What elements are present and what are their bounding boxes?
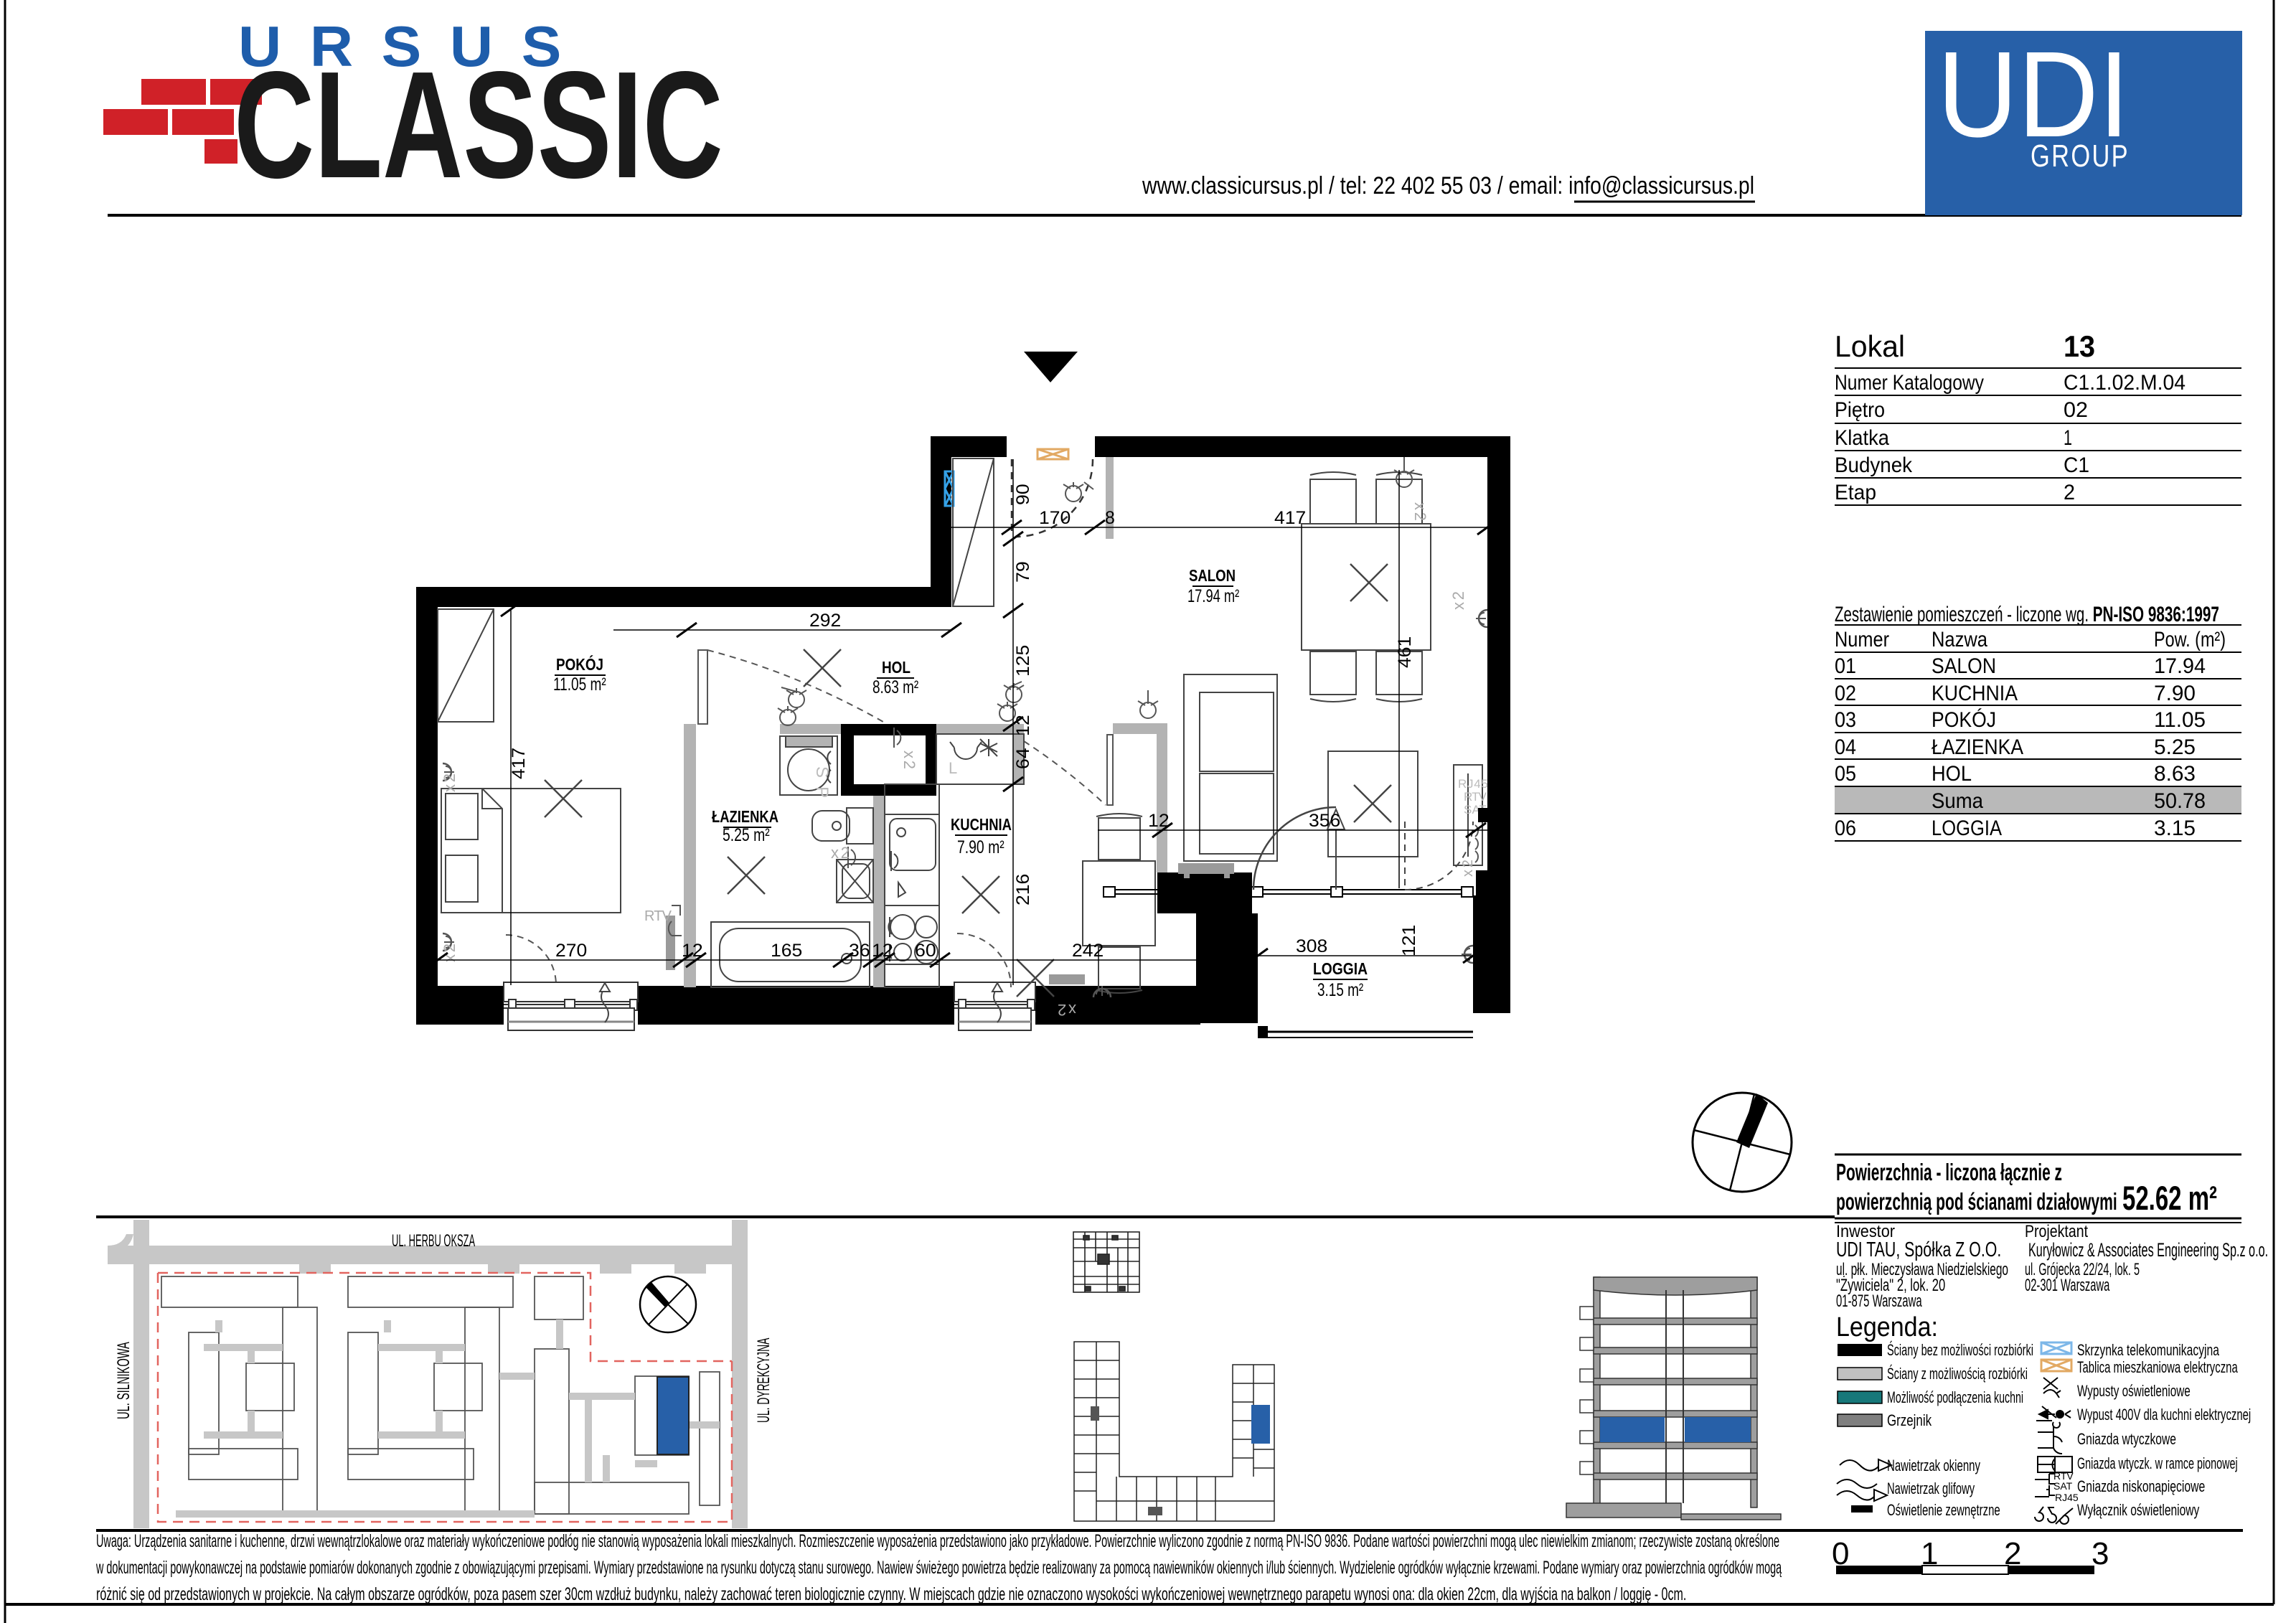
svg-text:ŁAZIENKA: ŁAZIENKA: [712, 807, 778, 826]
svg-text:Tablica mieszkaniowa elektrycz: Tablica mieszkaniowa elektryczna: [2077, 1358, 2238, 1376]
svg-text:x2: x2: [1460, 860, 1476, 877]
svg-text:Nawietrzak glifowy: Nawietrzak glifowy: [1887, 1479, 1975, 1497]
svg-text:01: 01: [1835, 654, 1856, 678]
svg-text:RJ45: RJ45: [2055, 1492, 2079, 1503]
svg-text:461: 461: [1396, 636, 1415, 668]
svg-text:C1.1.02.M.04: C1.1.02.M.04: [2064, 371, 2186, 395]
svg-text:Oświetlenie zewnętrzne: Oświetlenie zewnętrzne: [1887, 1501, 2000, 1519]
svg-text:P: P: [812, 786, 832, 798]
svg-text:Uwaga: Urządzenia sanitarne i: Uwaga: Urządzenia sanitarne i kuchenne, …: [96, 1531, 1779, 1551]
svg-text:12: 12: [872, 941, 893, 961]
svg-text:RJ45: RJ45: [1458, 777, 1488, 791]
svg-text:Wypusty oświetleniowe: Wypusty oświetleniowe: [2077, 1382, 2191, 1400]
svg-text:3.15 m²: 3.15 m²: [1317, 979, 1363, 1000]
svg-text:UL. DYREKCYJNA: UL. DYREKCYJNA: [754, 1338, 773, 1423]
svg-text:POKÓJ: POKÓJ: [556, 654, 603, 674]
svg-text:8: 8: [1105, 509, 1115, 528]
svg-text:SAT: SAT: [2053, 1480, 2073, 1492]
svg-text:216: 216: [1014, 874, 1033, 905]
svg-text:w dokumentacji powykonawczej n: w dokumentacji powykonawczej na podstawi…: [95, 1558, 1782, 1578]
svg-text:C1: C1: [2064, 453, 2089, 477]
svg-text:356: 356: [1309, 812, 1340, 831]
svg-text:01-875 Warszawa: 01-875 Warszawa: [1836, 1292, 1922, 1311]
svg-text:Wyłącznik oświetleniowy: Wyłącznik oświetleniowy: [2077, 1501, 2200, 1519]
svg-text:x2: x2: [1411, 502, 1429, 521]
svg-text:12: 12: [1014, 715, 1033, 736]
svg-text:8.63 m²: 8.63 m²: [872, 677, 918, 697]
svg-text:LOGGIA: LOGGIA: [1313, 959, 1368, 978]
svg-text:Nawietrzak okienny: Nawietrzak okienny: [1887, 1457, 1981, 1474]
svg-text:12: 12: [682, 941, 703, 961]
svg-text:Numer Katalogowy: Numer Katalogowy: [1835, 371, 1984, 395]
svg-text:Kuryłowicz & Associates Engine: Kuryłowicz & Associates Engineering Sp.z…: [2028, 1239, 2268, 1261]
svg-text:RTV: RTV: [644, 908, 672, 924]
svg-text:125: 125: [1014, 645, 1033, 677]
svg-text:Nazwa: Nazwa: [1932, 628, 1987, 651]
svg-text:Etap: Etap: [1835, 481, 1876, 504]
svg-text:Skrzynka telekomunikacyjna: Skrzynka telekomunikacyjna: [2077, 1341, 2220, 1359]
svg-text:Zestawienie pomieszczeń - licz: Zestawienie pomieszczeń - liczone wg. PN…: [1835, 603, 2219, 626]
svg-text:SALON: SALON: [1932, 654, 1996, 678]
svg-text:02-301 Warszawa: 02-301 Warszawa: [2025, 1276, 2110, 1295]
svg-text:170: 170: [1039, 509, 1071, 528]
svg-text:Możliwość podłączenia kuchni: Możliwość podłączenia kuchni: [1887, 1388, 2023, 1406]
svg-text:Piętro: Piętro: [1835, 398, 1885, 422]
svg-text:x2: x2: [441, 773, 458, 792]
svg-text:ŁAZIENKA: ŁAZIENKA: [1932, 735, 2023, 759]
svg-text:292: 292: [809, 611, 841, 631]
svg-text:02: 02: [1835, 682, 1856, 705]
svg-text:x2: x2: [1058, 1001, 1076, 1019]
svg-text:3.15: 3.15: [2154, 817, 2196, 840]
svg-text:17.94 m²: 17.94 m²: [1187, 585, 1239, 606]
svg-text:Suma: Suma: [1932, 789, 1983, 813]
svg-text:60: 60: [915, 941, 936, 961]
svg-text:Pow. (m²): Pow. (m²): [2154, 628, 2226, 651]
svg-text:417: 417: [1274, 509, 1306, 528]
svg-text:różnić się od przedstawionych: różnić się od przedstawionych w projekci…: [96, 1585, 1686, 1604]
svg-text:2: 2: [2064, 481, 2075, 504]
svg-text:Numer: Numer: [1835, 628, 1889, 651]
svg-text:36: 36: [849, 941, 870, 961]
svg-text:17.94: 17.94: [2154, 654, 2206, 678]
svg-text:www.classicursus.pl / tel: 22: www.classicursus.pl / tel: 22 402 55 03 …: [1142, 172, 1754, 199]
svg-text:UL. HERBU OKSZA: UL. HERBU OKSZA: [392, 1232, 475, 1251]
svg-text:x2: x2: [441, 944, 458, 962]
svg-text:Gniazda niskonapięciowe: Gniazda niskonapięciowe: [2077, 1477, 2205, 1495]
svg-text:CLASSIC: CLASSIC: [234, 40, 723, 210]
svg-text:417: 417: [509, 748, 529, 779]
svg-text:L: L: [949, 759, 957, 777]
svg-text:x2: x2: [900, 751, 918, 769]
svg-text:Grzejnik: Grzejnik: [1887, 1411, 1932, 1429]
svg-text:90: 90: [1014, 484, 1033, 505]
svg-text:7.90 m²: 7.90 m²: [957, 837, 1004, 857]
svg-text:Lokal: Lokal: [1835, 329, 1905, 363]
svg-text:13: 13: [2064, 329, 2095, 363]
svg-text:Gniazda wtyczkowe: Gniazda wtyczkowe: [2077, 1430, 2176, 1448]
svg-text:02: 02: [2064, 398, 2088, 422]
svg-text:42: 42: [1490, 874, 1510, 895]
svg-text:06: 06: [1835, 817, 1856, 840]
svg-text:03: 03: [1835, 708, 1856, 732]
svg-text:79: 79: [1014, 561, 1033, 583]
svg-text:Ściany z możliwością rozbiórki: Ściany z możliwością rozbiórki: [1887, 1365, 2028, 1383]
svg-text:8.63: 8.63: [2154, 762, 2196, 786]
svg-text:05: 05: [1835, 762, 1856, 786]
svg-text:11.05 m²: 11.05 m²: [553, 674, 606, 695]
svg-text:powierzchnią pod ścianami dzia: powierzchnią pod ścianami działowymi: [1836, 1188, 2117, 1215]
svg-text:165: 165: [771, 941, 802, 961]
svg-text:LOGGIA: LOGGIA: [1932, 817, 2002, 840]
svg-text:RTV: RTV: [1464, 790, 1487, 804]
svg-text:04: 04: [1835, 735, 1856, 759]
svg-text:52.62 m²: 52.62 m²: [2122, 1179, 2217, 1217]
svg-text:Klatka: Klatka: [1835, 426, 1889, 450]
svg-text:12: 12: [1148, 812, 1170, 831]
svg-text:7.90: 7.90: [2154, 682, 2196, 705]
svg-text:KUCHNIA: KUCHNIA: [951, 815, 1012, 834]
svg-text:1: 1: [2064, 426, 2072, 450]
svg-text:5.25 m²: 5.25 m²: [723, 824, 770, 845]
svg-text:270: 270: [555, 941, 587, 961]
svg-text:Legenda:: Legenda:: [1836, 1312, 1938, 1342]
svg-text:Powierzchnia - liczona łącznie: Powierzchnia - liczona łącznie z: [1836, 1159, 2062, 1185]
svg-text:SALON: SALON: [1189, 566, 1236, 585]
svg-text:POKÓJ: POKÓJ: [1932, 708, 1996, 732]
svg-text:242: 242: [1072, 941, 1104, 961]
svg-text:S: S: [812, 766, 832, 778]
svg-text:11.05: 11.05: [2154, 708, 2206, 732]
svg-text:121: 121: [1400, 925, 1419, 956]
svg-text:HOL: HOL: [882, 658, 911, 677]
svg-text:64: 64: [1014, 748, 1033, 769]
svg-text:Gniazda wtyczk. w ramce pionow: Gniazda wtyczk. w ramce pionowej: [2077, 1454, 2238, 1472]
svg-text:UL. SILNIKOWA: UL. SILNIKOWA: [114, 1342, 133, 1419]
svg-text:Budynek: Budynek: [1835, 453, 1913, 477]
svg-text:GROUP: GROUP: [2031, 138, 2130, 174]
svg-text:5.25: 5.25: [2154, 735, 2196, 759]
svg-text:KUCHNIA: KUCHNIA: [1932, 682, 2018, 705]
svg-text:308: 308: [1296, 937, 1327, 956]
svg-text:UDI TAU, Spółka Z O.O.: UDI TAU, Spółka Z O.O.: [1836, 1238, 2001, 1261]
svg-text:HOL: HOL: [1932, 762, 1972, 786]
svg-text:x2: x2: [1449, 591, 1467, 610]
svg-text:Wypust 400V dla kuchni elektry: Wypust 400V dla kuchni elektrycznej: [2077, 1406, 2251, 1424]
svg-text:50.78: 50.78: [2154, 789, 2206, 813]
svg-text:Ściany bez możliwości rozbiórk: Ściany bez możliwości rozbiórki: [1887, 1341, 2033, 1359]
